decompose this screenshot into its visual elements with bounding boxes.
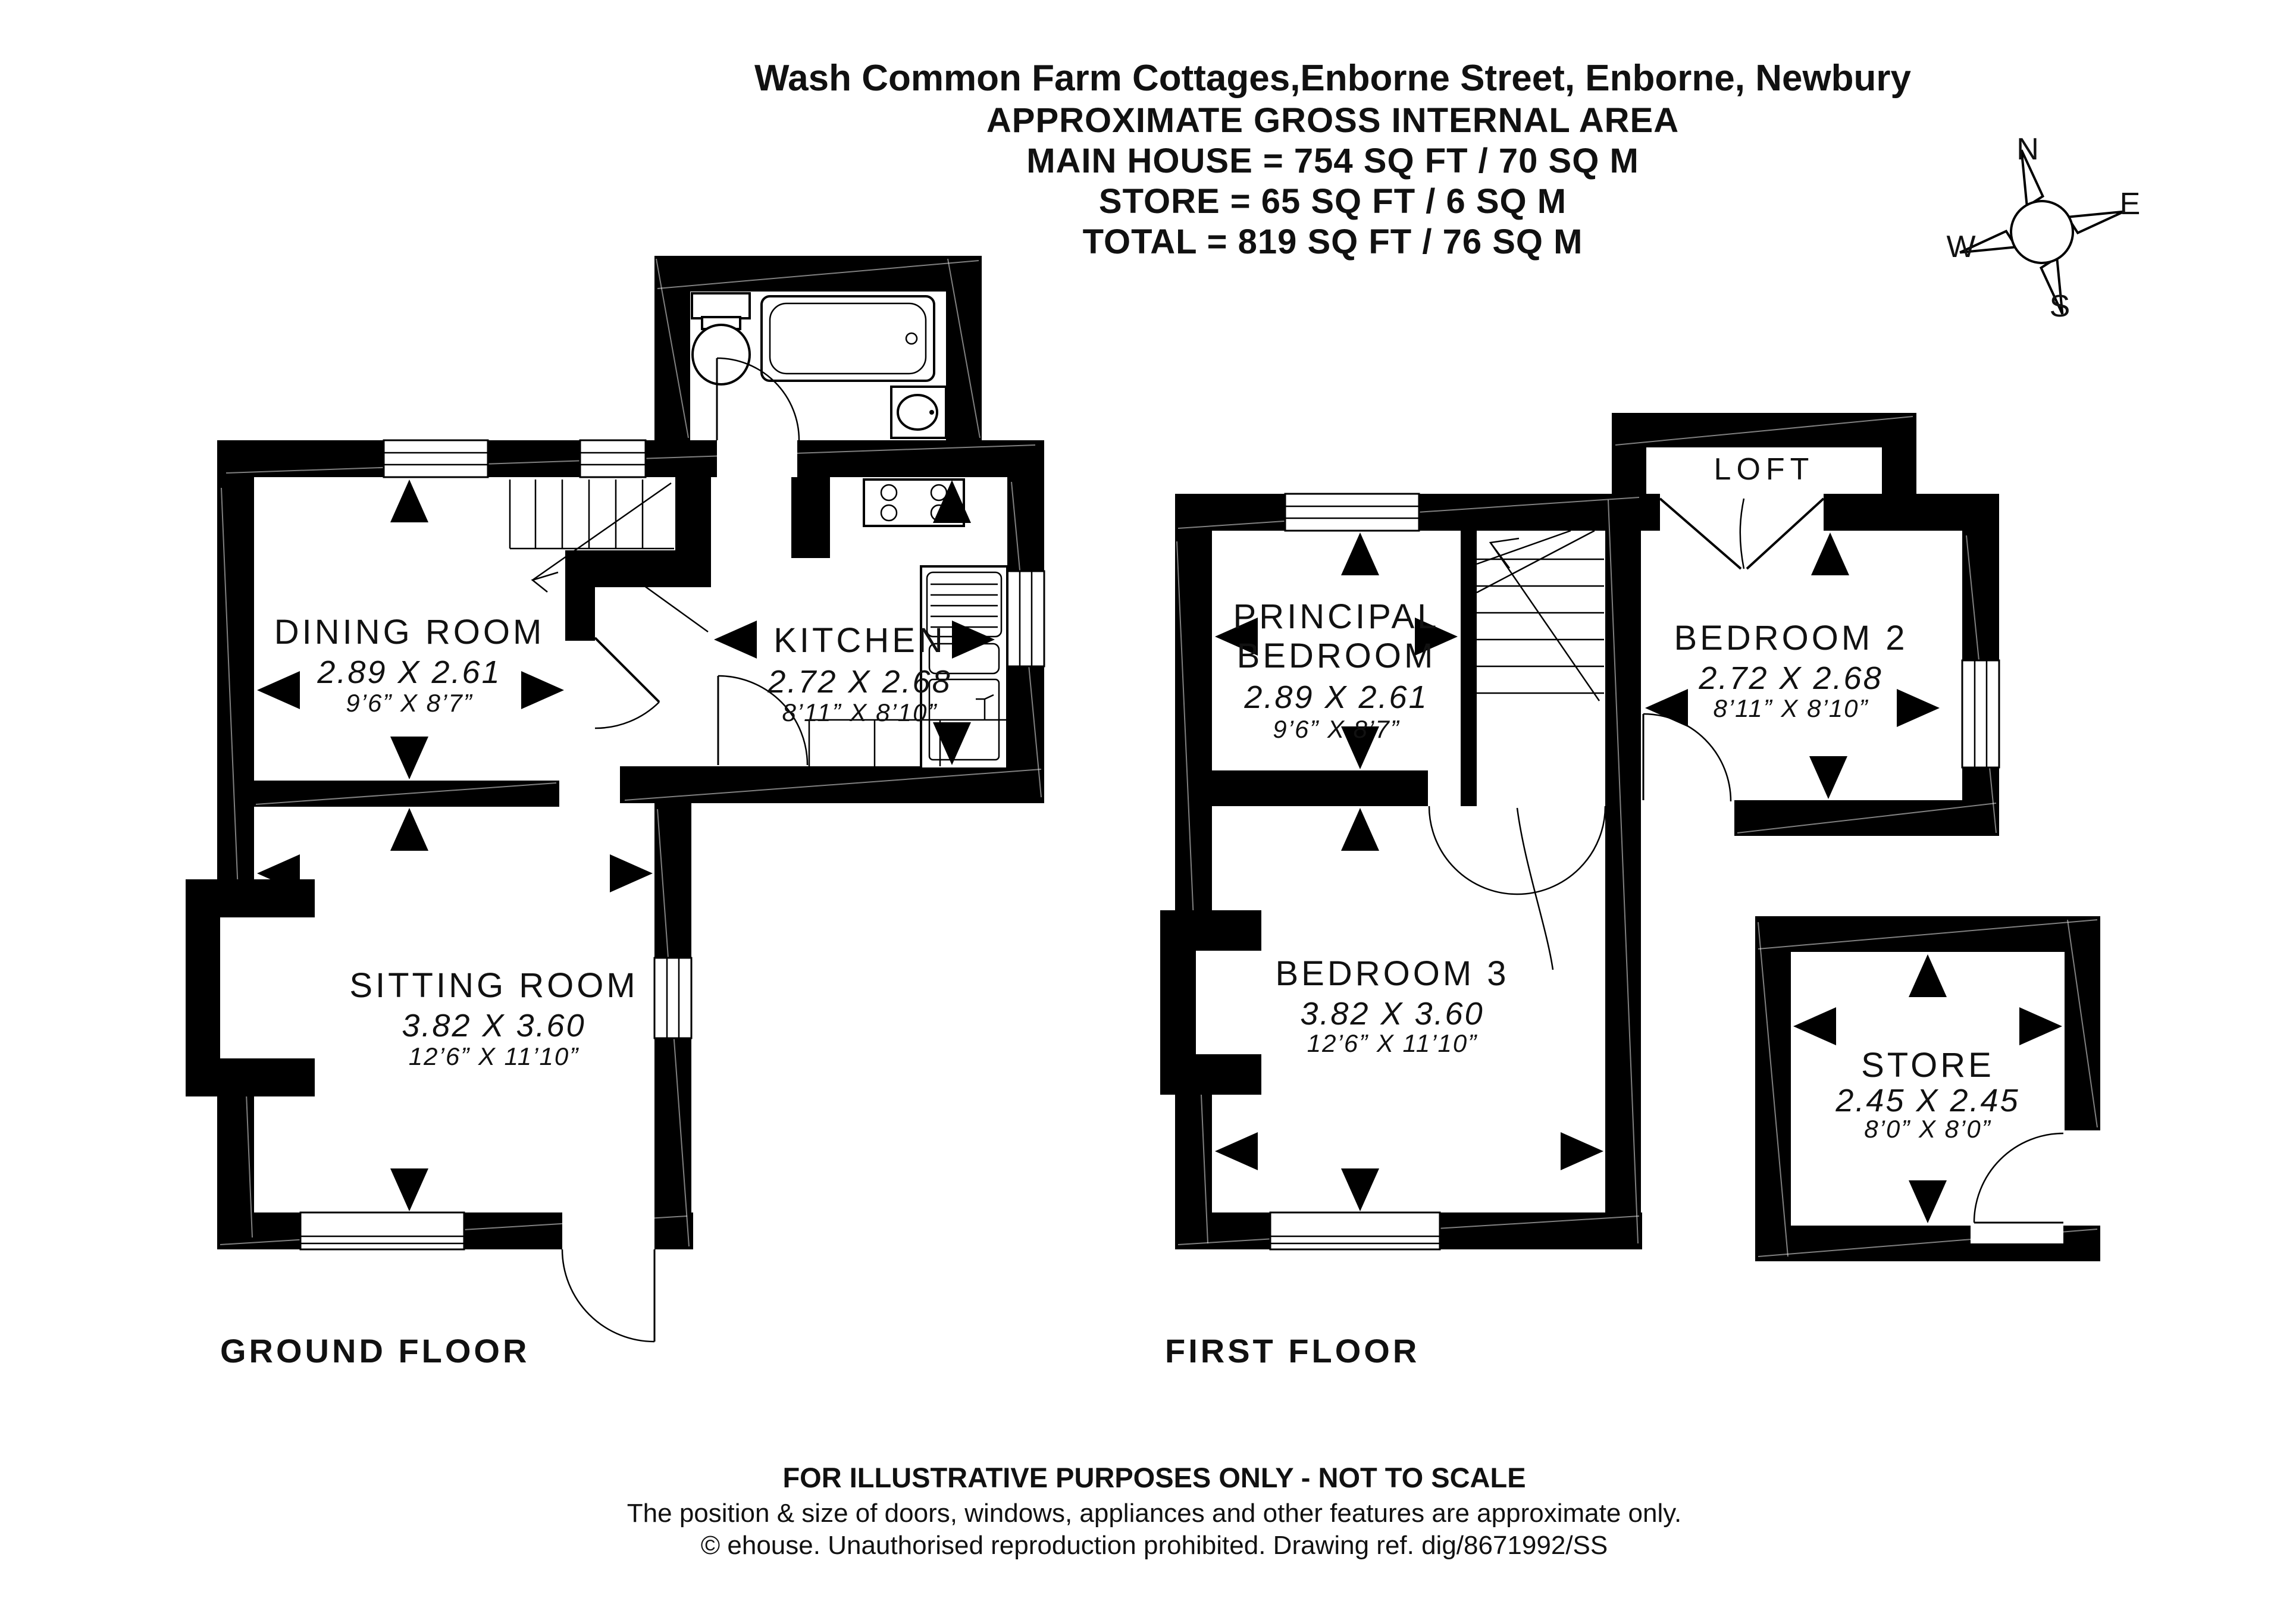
store-name: STORE [1861,1046,1994,1085]
bedroom2-imperial: 8’11” X 8’10” [1713,694,1868,722]
first-floor-plan: PRINCIPAL BEDROOM 2.89 X 2.61 9’6” X 8’7… [1160,413,2100,1370]
compass-icon: N E W S [1940,130,2144,334]
ground-room-labels: DINING ROOM 2.89 X 2.61 9’6” X 8’7” KITC… [274,613,952,1070]
window [384,440,488,477]
store-door-arc [1974,1133,2063,1223]
window [580,440,646,477]
bathroom-fixtures [692,293,946,438]
compass-south-label: S [2050,289,2071,324]
window [1007,571,1044,666]
chimney-breast [1160,910,1263,1095]
kitchen-metric: 2.72 X 2.68 [767,664,951,700]
footer-block: FOR ILLUSTRATIVE PURPOSES ONLY - NOT TO … [627,1462,1681,1560]
kitchen-imperial: 8’11” X 8’10” [782,698,937,726]
store-metric: 2.45 X 2.45 [1835,1083,2019,1118]
sitting-room-imperial: 12’6” X 11’10” [409,1042,579,1070]
title-address: Wash Common Farm Cottages,Enborne Street… [754,58,1912,99]
footer-disclaimer-bold: FOR ILLUSTRATIVE PURPOSES ONLY - NOT TO … [782,1462,1526,1493]
door-arc [1643,714,1731,801]
ground-floor-label: GROUND FLOOR [220,1332,530,1370]
window [1285,494,1419,531]
store-imperial: 8’0” X 8’0” [1864,1115,1991,1143]
bedroom2-name: BEDROOM 2 [1674,619,1907,657]
fireplace [186,879,315,1096]
title-block: Wash Common Farm Cottages,Enborne Street… [754,58,1912,261]
compass-east-label: E [2120,187,2141,221]
dining-room-metric: 2.89 X 2.61 [317,654,501,690]
first-floor-label: FIRST FLOOR [1165,1332,1420,1370]
window [1962,660,1999,767]
compass-west-label: W [1946,230,1975,264]
staircase-first [1477,531,1604,701]
bathtub-icon [762,296,934,381]
room-label-store: STORE 2.45 X 2.45 8’0” X 8’0” [1835,1046,2019,1143]
room-label-bedroom2: BEDROOM 2 2.72 X 2.68 8’11” X 8’10” [1674,619,1907,722]
toilet-icon [692,293,750,384]
title-main-house-area: MAIN HOUSE = 754 SQ FT / 70 SQ M [1026,142,1639,180]
bedroom3-name: BEDROOM 3 [1275,954,1509,993]
kitchen-name: KITCHEN [773,621,946,660]
front-door-arc [562,1249,654,1342]
loft-label: LOFT [1714,452,1815,487]
footer-approximate-note: The position & size of doors, windows, a… [627,1499,1681,1528]
room-label-bedroom3: BEDROOM 3 3.82 X 3.60 12’6” X 11’10” [1275,954,1509,1057]
washbasin-icon [891,387,946,438]
principal-bedroom-name-2: BEDROOM [1237,637,1436,675]
title-total-area: TOTAL = 819 SQ FT / 76 SQ M [1083,223,1583,261]
landing-door-fan [1429,806,1605,970]
room-label-sitting: SITTING ROOM 3.82 X 3.60 12’6” X 11’10” [349,966,638,1070]
dining-room-imperial: 9’6” X 8’7” [346,689,472,717]
sitting-room-name: SITTING ROOM [349,966,638,1005]
floorplan-canvas: Wash Common Farm Cottages,Enborne Street… [0,0,2296,1623]
bedroom3-imperial: 12’6” X 11’10” [1307,1029,1477,1057]
principal-bedroom-metric: 2.89 X 2.61 [1243,679,1428,715]
principal-bedroom-imperial: 9’6” X 8’7” [1273,715,1399,743]
footer-copyright: © ehouse. Unauthorised reproduction proh… [701,1531,1608,1560]
dining-room-name: DINING ROOM [274,613,545,651]
loft-double-doors [1660,499,1824,569]
principal-bedroom-name-1: PRINCIPAL [1233,597,1440,636]
title-store-area: STORE = 65 SQ FT / 6 SQ M [1099,182,1567,221]
room-label-principal: PRINCIPAL BEDROOM 2.89 X 2.61 9’6” X 8’7… [1233,597,1440,743]
compass-north-label: N [2016,132,2039,167]
window [300,1212,464,1249]
title-area-heading: APPROXIMATE GROSS INTERNAL AREA [986,101,1679,140]
room-label-kitchen: KITCHEN 2.72 X 2.68 8’11” X 8’10” [767,621,951,726]
room-label-dining: DINING ROOM 2.89 X 2.61 9’6” X 8’7” [274,613,545,717]
window [1270,1212,1440,1249]
ground-dimension-arrows [257,480,995,1211]
door-arc [595,638,659,728]
ground-floor-plan: DINING ROOM 2.89 X 2.61 9’6” X 8’7” KITC… [186,256,1044,1370]
sitting-room-metric: 3.82 X 3.60 [402,1008,585,1044]
bedroom3-metric: 3.82 X 3.60 [1300,996,1484,1032]
window [654,958,691,1038]
bedroom2-metric: 2.72 X 2.68 [1698,660,1882,696]
